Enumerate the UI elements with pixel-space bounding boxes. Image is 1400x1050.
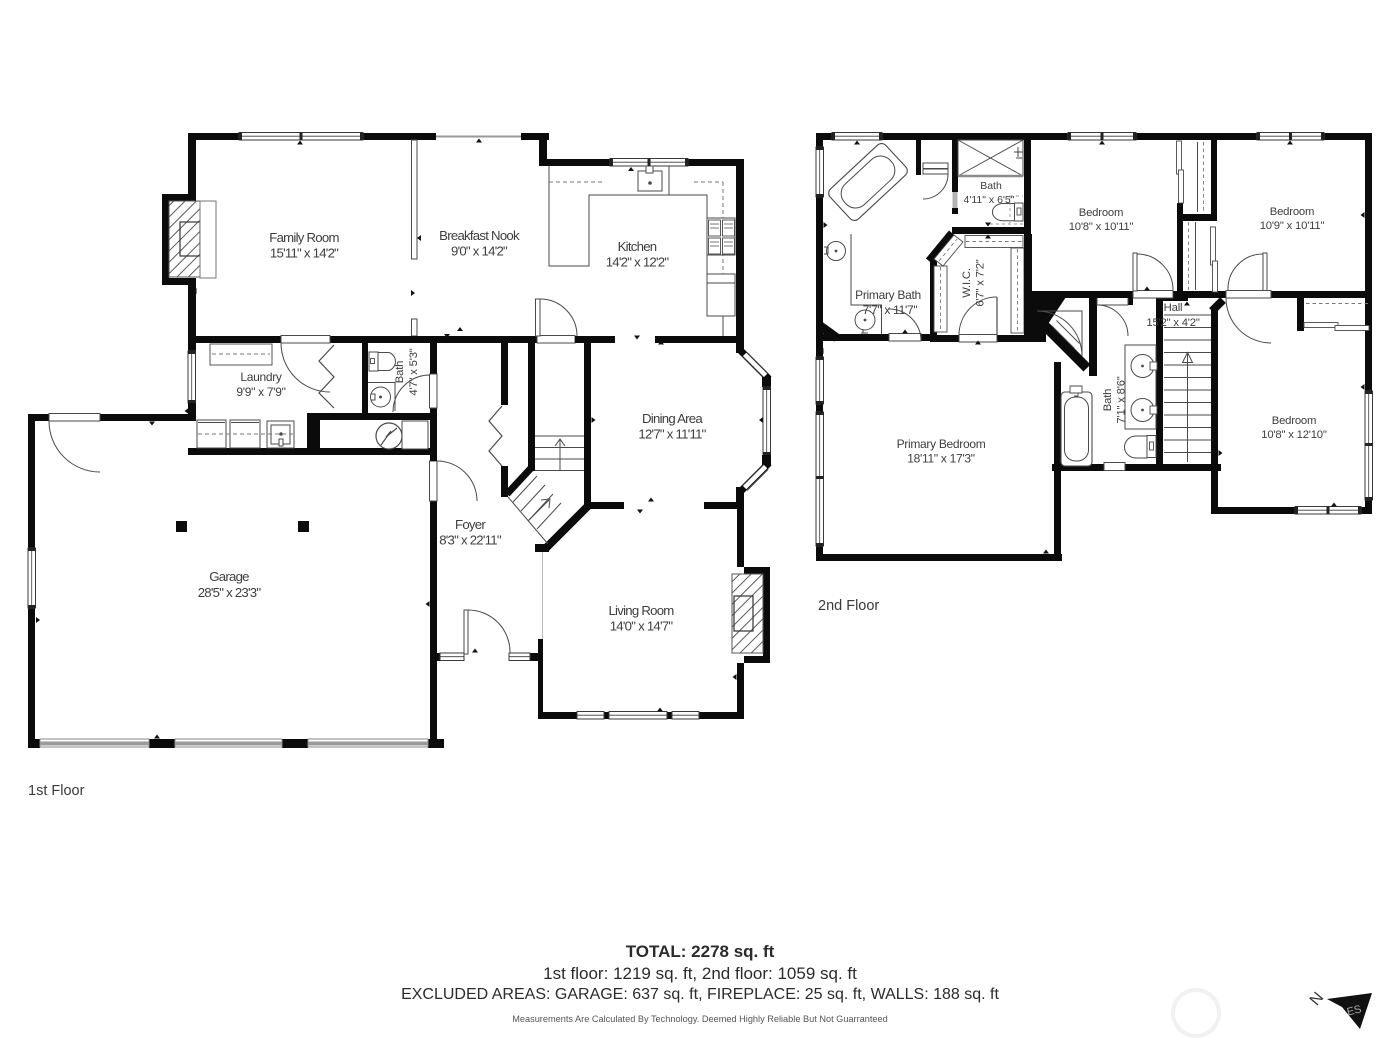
svg-text:8'3" x 22'11": 8'3" x 22'11" — [439, 533, 502, 548]
svg-text:9'9" x 7'9": 9'9" x 7'9" — [236, 385, 285, 399]
svg-text:6'7" x 7'2": 6'7" x 7'2" — [975, 259, 987, 306]
svg-text:Bedroom: Bedroom — [1079, 207, 1123, 219]
svg-text:Foyer: Foyer — [455, 517, 486, 532]
svg-text:2nd Floor: 2nd Floor — [818, 598, 879, 614]
svg-text:EXCLUDED AREAS: GARAGE: 637 sq: EXCLUDED AREAS: GARAGE: 637 sq. ft, FIRE… — [401, 986, 999, 1003]
svg-text:12'7" x 11'11": 12'7" x 11'11" — [638, 427, 706, 442]
svg-text:10'8" x 12'10": 10'8" x 12'10" — [1261, 429, 1327, 441]
svg-text:Living Room: Living Room — [608, 603, 674, 618]
svg-text:14'2" x 12'2": 14'2" x 12'2" — [606, 255, 670, 270]
svg-text:10'9" x 10'11": 10'9" x 10'11" — [1260, 220, 1325, 232]
svg-text:Bedroom: Bedroom — [1272, 415, 1316, 427]
svg-text:15'11" x 14'2": 15'11" x 14'2" — [270, 246, 339, 261]
svg-text:1st floor: 1219 sq. ft, 2nd fl: 1st floor: 1219 sq. ft, 2nd floor: 1059 … — [543, 964, 857, 983]
svg-text:7'7" x 11'7": 7'7" x 11'7" — [863, 303, 918, 317]
svg-text:4'11" x 6'5": 4'11" x 6'5" — [964, 194, 1015, 206]
svg-text:14'0" x 14'7": 14'0" x 14'7" — [610, 619, 674, 634]
svg-text:Bedroom: Bedroom — [1270, 206, 1314, 218]
svg-text:Bath: Bath — [394, 361, 406, 383]
svg-text:Hall: Hall — [1164, 302, 1183, 314]
svg-text:9'0" x 14'2": 9'0" x 14'2" — [451, 244, 508, 259]
svg-text:Laundry: Laundry — [240, 370, 282, 384]
svg-text:10'8" x 10'11": 10'8" x 10'11" — [1069, 221, 1134, 233]
svg-text:TOTAL: 2278 sq. ft: TOTAL: 2278 sq. ft — [626, 942, 775, 961]
svg-text:18'11" x 17'3": 18'11" x 17'3" — [907, 452, 974, 466]
svg-text:28'5" x 23'3": 28'5" x 23'3" — [198, 585, 262, 600]
svg-text:7'1" x 8'6": 7'1" x 8'6" — [1116, 376, 1128, 423]
svg-text:Garage: Garage — [209, 569, 249, 584]
svg-text:Bath: Bath — [1102, 389, 1114, 411]
svg-text:1st Floor: 1st Floor — [28, 783, 85, 799]
svg-text:4'7" x 5'3": 4'7" x 5'3" — [408, 348, 420, 395]
svg-text:15'2" x 4'2": 15'2" x 4'2" — [1146, 317, 1199, 329]
svg-text:Family Room: Family Room — [269, 230, 339, 245]
svg-text:Primary Bedroom: Primary Bedroom — [897, 437, 986, 451]
svg-text:Primary Bath: Primary Bath — [855, 288, 921, 302]
svg-text:Kitchen: Kitchen — [618, 239, 657, 254]
svg-text:W.I.C.: W.I.C. — [961, 268, 973, 298]
svg-text:Bath: Bath — [980, 180, 1002, 192]
svg-text:Breakfast Nook: Breakfast Nook — [439, 228, 520, 243]
svg-text:Dining Area: Dining Area — [642, 411, 703, 426]
svg-text:Measurements Are Calculated By: Measurements Are Calculated By Technolog… — [512, 1014, 888, 1024]
